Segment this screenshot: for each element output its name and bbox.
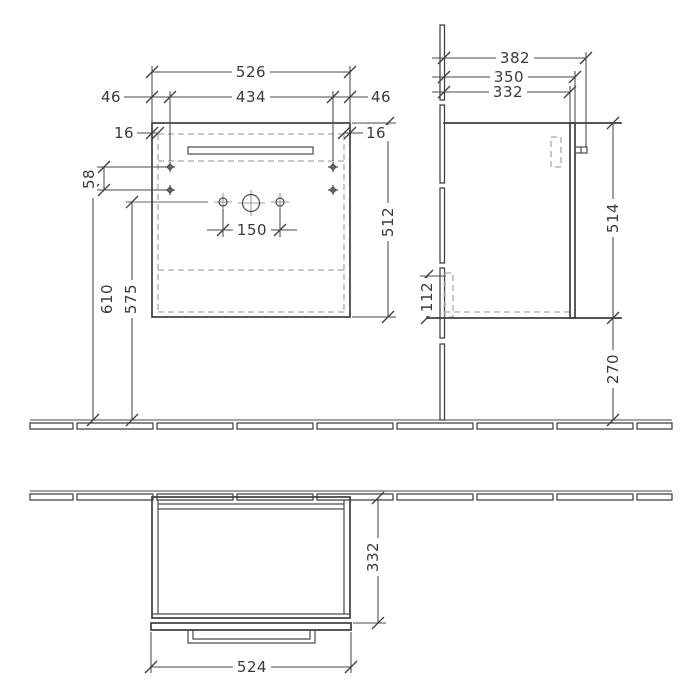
- front-cabinet-outline: [152, 123, 350, 317]
- dim-label-floor-clearance: 270: [604, 354, 622, 384]
- plan-door-front: [151, 623, 351, 630]
- technical-drawing-page: 526 434 46 46 16 16 58 610 575 150 512 3…: [0, 0, 700, 700]
- dim-label-height-trap: 575: [122, 284, 140, 314]
- dim-label-panel-left: 16: [114, 124, 134, 142]
- side-dimension-ticks: [421, 52, 619, 426]
- side-cabinet-outline: [427, 123, 621, 318]
- front-dimension-ticks: [87, 66, 394, 426]
- dim-label-hole-spacing-h: 434: [236, 88, 266, 106]
- dim-label-overall-width: 526: [236, 63, 266, 81]
- front-handle-slot: [188, 147, 313, 154]
- front-centerlines: [126, 190, 289, 216]
- dim-label-depth-overall: 382: [500, 49, 530, 67]
- dim-label-rail-height: 112: [418, 282, 436, 312]
- dim-label-hole-spacing-v: 58: [80, 169, 98, 189]
- dim-label-panel-right: 16: [366, 124, 386, 142]
- wall-line-lower: [30, 491, 672, 500]
- plan-dimension-ticks: [145, 492, 384, 673]
- front-view: [82, 66, 396, 426]
- plan-cabinet-outline: [151, 497, 351, 643]
- dimension-labels: 526 434 46 46 16 16 58 610 575 150 512 3…: [80, 49, 622, 676]
- dim-label-plan-depth: 332: [364, 542, 382, 572]
- side-wall: [440, 25, 445, 420]
- top-view: [145, 492, 386, 673]
- dim-label-side-height: 514: [604, 203, 622, 233]
- dim-label-depth-body: 332: [493, 83, 523, 101]
- side-dimension-lines: [420, 52, 613, 420]
- floor-line-upper: [30, 420, 672, 429]
- dim-label-offset-right: 46: [371, 88, 391, 106]
- dim-label-front-width: 524: [237, 658, 267, 676]
- dim-label-height-holes: 610: [98, 284, 116, 314]
- plan-handle-inner: [193, 630, 310, 639]
- label-backgrounds: [81, 50, 621, 675]
- dim-label-body-height: 512: [379, 207, 397, 237]
- dim-label-tap-spacing: 150: [237, 221, 267, 239]
- front-dimension-lines: [82, 66, 396, 420]
- vanity-technical-drawing: 526 434 46 46 16 16 58 610 575 150 512 3…: [0, 0, 700, 700]
- dim-label-offset-left: 46: [101, 88, 121, 106]
- side-hidden-lines: [444, 137, 570, 317]
- plan-handle-outer: [188, 630, 315, 643]
